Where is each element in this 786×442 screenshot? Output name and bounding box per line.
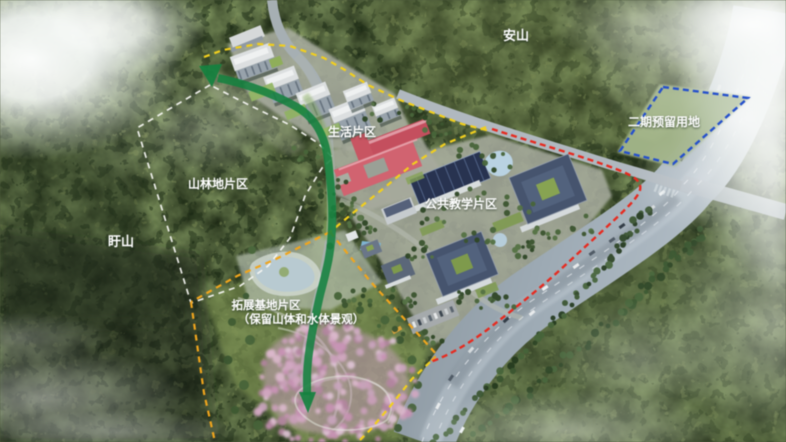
svg-text:拓展基地片区: 拓展基地片区 — [232, 298, 301, 312]
svg-text:生活片区: 生活片区 — [328, 124, 376, 139]
svg-text:安山: 安山 — [503, 28, 529, 43]
svg-text:公共教学片区: 公共教学片区 — [425, 196, 497, 211]
svg-text:盱山: 盱山 — [108, 234, 134, 249]
svg-text:（保留山体和水体景观）: （保留山体和水体景观） — [238, 312, 365, 326]
svg-text:二期预留用地: 二期预留用地 — [628, 114, 700, 129]
svg-text:山林地片区: 山林地片区 — [188, 176, 248, 191]
